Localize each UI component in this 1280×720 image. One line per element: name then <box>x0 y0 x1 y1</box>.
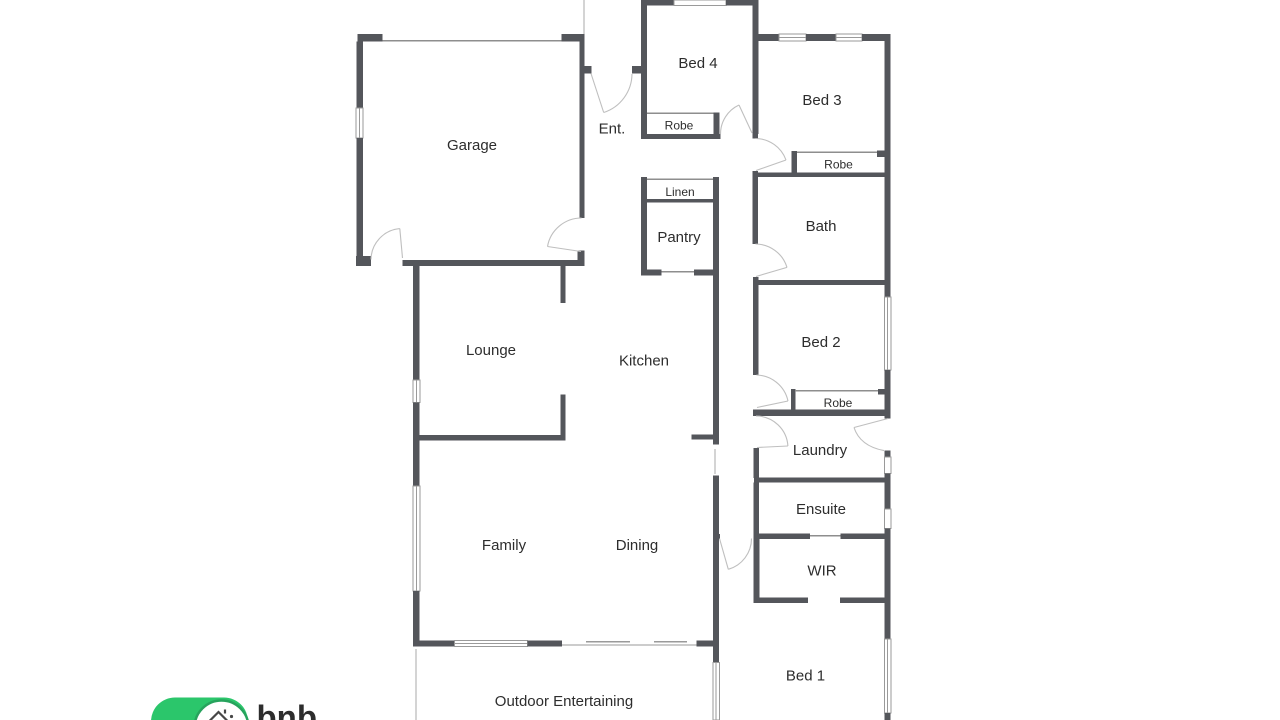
svg-text:Bath: Bath <box>806 218 837 235</box>
svg-text:Ensuite: Ensuite <box>796 501 846 518</box>
svg-text:Family: Family <box>482 537 527 554</box>
svg-text:Lounge: Lounge <box>466 342 516 359</box>
svg-text:Linen: Linen <box>665 185 694 199</box>
svg-text:Outdoor Entertaining: Outdoor Entertaining <box>495 693 633 710</box>
svg-text:WIR: WIR <box>807 563 836 580</box>
svg-text:Pantry: Pantry <box>657 229 701 246</box>
svg-text:Garage: Garage <box>447 137 497 154</box>
svg-text:Robe: Robe <box>824 396 853 410</box>
svg-text:Bed 1: Bed 1 <box>786 668 825 685</box>
svg-text:Bed 3: Bed 3 <box>802 92 841 109</box>
svg-text:bnb: bnb <box>257 699 317 720</box>
svg-text:Bed 2: Bed 2 <box>801 334 840 351</box>
svg-text:Robe: Robe <box>665 119 694 133</box>
svg-text:Laundry: Laundry <box>793 442 848 459</box>
svg-text:Kitchen: Kitchen <box>619 353 669 370</box>
svg-text:Robe: Robe <box>824 158 853 172</box>
svg-text:Ent.: Ent. <box>599 121 626 138</box>
svg-text:Bed 4: Bed 4 <box>678 55 717 72</box>
svg-text:Dining: Dining <box>616 537 659 554</box>
